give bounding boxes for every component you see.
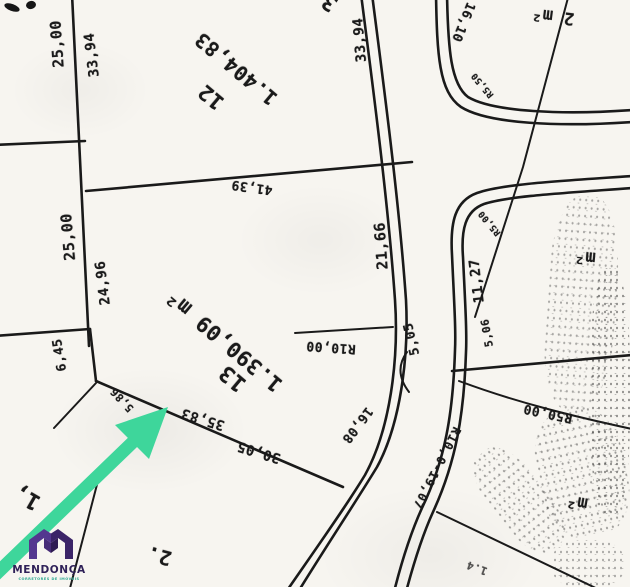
- bottomright-diagonal-line: [437, 512, 604, 587]
- area-fragment-top-right: 2 m²: [530, 3, 575, 28]
- speckle-texture: [525, 400, 630, 545]
- dim-label-16-10: 16,10: [448, 0, 478, 44]
- logo-tagline-text: corretores de imóveis: [6, 577, 92, 581]
- survey-linework: [0, 0, 630, 587]
- dim-label-5-06: 5,06: [478, 318, 496, 348]
- lot13-south-boundary: [96, 381, 343, 487]
- road-stationing-label: R10,0-19,07: [410, 425, 464, 512]
- road-left-curb-outer: [286, 0, 396, 587]
- diagonal-boundary-topright: [475, 0, 569, 317]
- mendonca-house-m-icon: [27, 527, 75, 561]
- dim-label-33-94-left: 33,94: [81, 32, 102, 78]
- text-fragment-left: 1,: [9, 479, 45, 514]
- dim-label-5-86: 5,86: [108, 385, 137, 415]
- highlight-arrow-head: [115, 407, 168, 459]
- dim-line-r10: [295, 327, 393, 333]
- dim-label-5-05: 5,05: [401, 321, 423, 357]
- midright-lot-south-line: [452, 355, 630, 371]
- text-fragment-top-edge: 3: [317, 0, 343, 16]
- paper-grain: [0, 0, 630, 587]
- area-fragment-mid-right: m²: [573, 246, 596, 268]
- dim-label-41-39: 41,39: [230, 177, 273, 198]
- dim-label-16-08: 16,08: [338, 404, 375, 446]
- road-left-curb-inner: [298, 0, 407, 587]
- logo-name-text: MENDONÇA: [6, 564, 92, 576]
- speckle-texture: [461, 436, 577, 564]
- lot13-west-corner-edge: [90, 329, 96, 381]
- plat-map-scan: 25,00 33,94 25,00 24,96 6,45 5,86 35,83 …: [0, 0, 630, 587]
- lot12-number-label: 12: [193, 79, 229, 114]
- dim-label-25-00-top: 25,00: [46, 20, 67, 69]
- corner-mid-curb-outer: [394, 176, 630, 587]
- lot13-west-line: [0, 329, 90, 336]
- speckle-texture: [552, 540, 624, 587]
- dim-label-30-05: 30,05: [235, 438, 282, 466]
- speckle-texture: [539, 194, 624, 413]
- lot13-sw-edge: [54, 383, 96, 428]
- dim-label-33-94-right: 33,94: [350, 17, 370, 63]
- dim-label-25-00-mid: 25,00: [57, 212, 79, 261]
- upper-left-lot-line: [0, 141, 85, 145]
- text-fragment-lot2: 2.: [144, 541, 174, 571]
- curve-arc-5-05: [400, 352, 409, 392]
- dim-label-21-66: 21,66: [370, 222, 391, 271]
- text-fragment-bottom-right: 1.4: [465, 558, 490, 578]
- radius-label-r10-00: R10,00: [306, 338, 357, 356]
- highlight-arrow: [0, 0, 630, 587]
- speckle-texture: [590, 268, 630, 518]
- dim-label-35-83: 35,83: [179, 405, 226, 433]
- dim-label-6-45: 6,45: [50, 337, 70, 372]
- mendonca-logo: MENDONÇA corretores de imóveis: [6, 522, 92, 584]
- dim-label-24-96: 24,96: [92, 260, 113, 306]
- radius-label-r5-50: R5,50: [470, 70, 497, 99]
- radius-label-r50-00: R50,00: [522, 400, 574, 425]
- radius-label-r5-00: R5,00: [477, 208, 504, 237]
- area-fragment-bottom-right: m²: [565, 490, 590, 513]
- ink-mark: [3, 1, 20, 13]
- dim-label-11-27: 11,27: [466, 258, 487, 304]
- ink-mark: [25, 0, 37, 10]
